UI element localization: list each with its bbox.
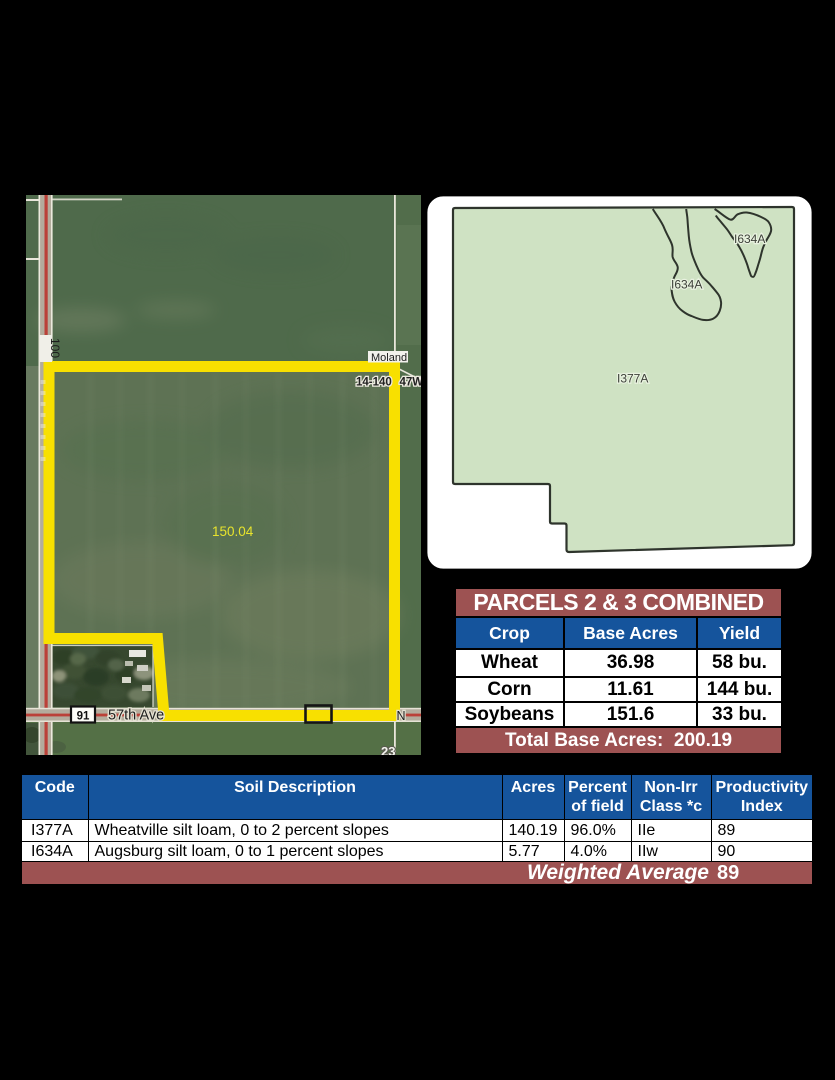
svg-text:N: N <box>397 709 406 723</box>
svg-text:57th Ave: 57th Ave <box>108 708 164 724</box>
svg-text:Moland: Moland <box>371 352 407 364</box>
svg-text:100: 100 <box>48 338 62 358</box>
svg-text:I634A: I634A <box>734 232 765 246</box>
svg-text:23: 23 <box>381 744 395 755</box>
svg-text:I377A: I377A <box>617 372 648 386</box>
svg-text:14-140: 14-140 <box>356 377 392 389</box>
svg-text:150.04: 150.04 <box>212 524 254 539</box>
svg-text:47W: 47W <box>400 377 422 389</box>
svg-text:91: 91 <box>77 711 90 723</box>
svg-text:I634A: I634A <box>671 278 702 292</box>
